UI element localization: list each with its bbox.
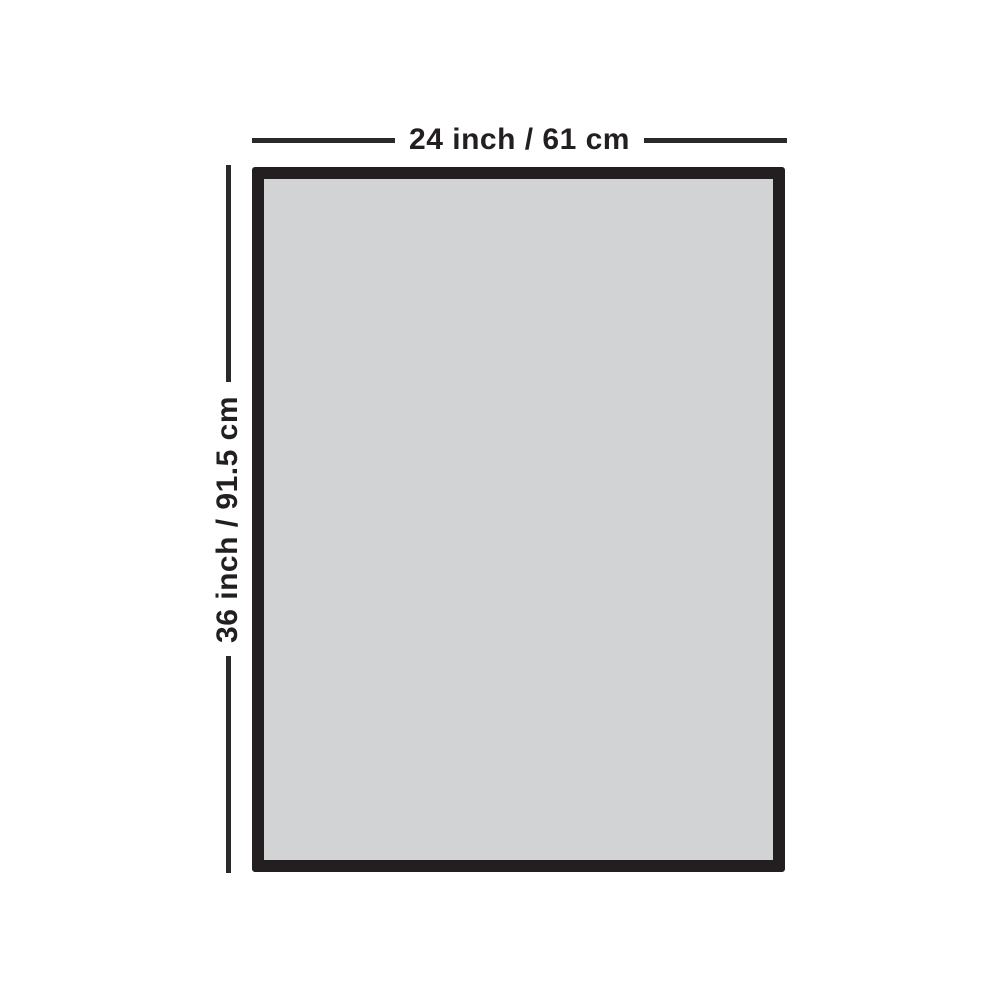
width-dimension-label: 24 inch / 61 cm xyxy=(395,123,644,157)
width-dimension-line-left xyxy=(252,138,395,143)
height-dimension-line-bottom xyxy=(226,656,231,873)
width-dimension-line-right xyxy=(644,138,787,143)
measured-rectangle xyxy=(252,167,785,872)
height-dimension: 36 inch / 91.5 cm xyxy=(209,165,247,873)
height-dimension-label: 36 inch / 91.5 cm xyxy=(211,382,245,657)
height-dimension-line-top xyxy=(226,165,231,382)
diagram-canvas: 24 inch / 61 cm 36 inch / 91.5 cm xyxy=(0,0,1000,1000)
width-dimension: 24 inch / 61 cm xyxy=(252,122,787,158)
